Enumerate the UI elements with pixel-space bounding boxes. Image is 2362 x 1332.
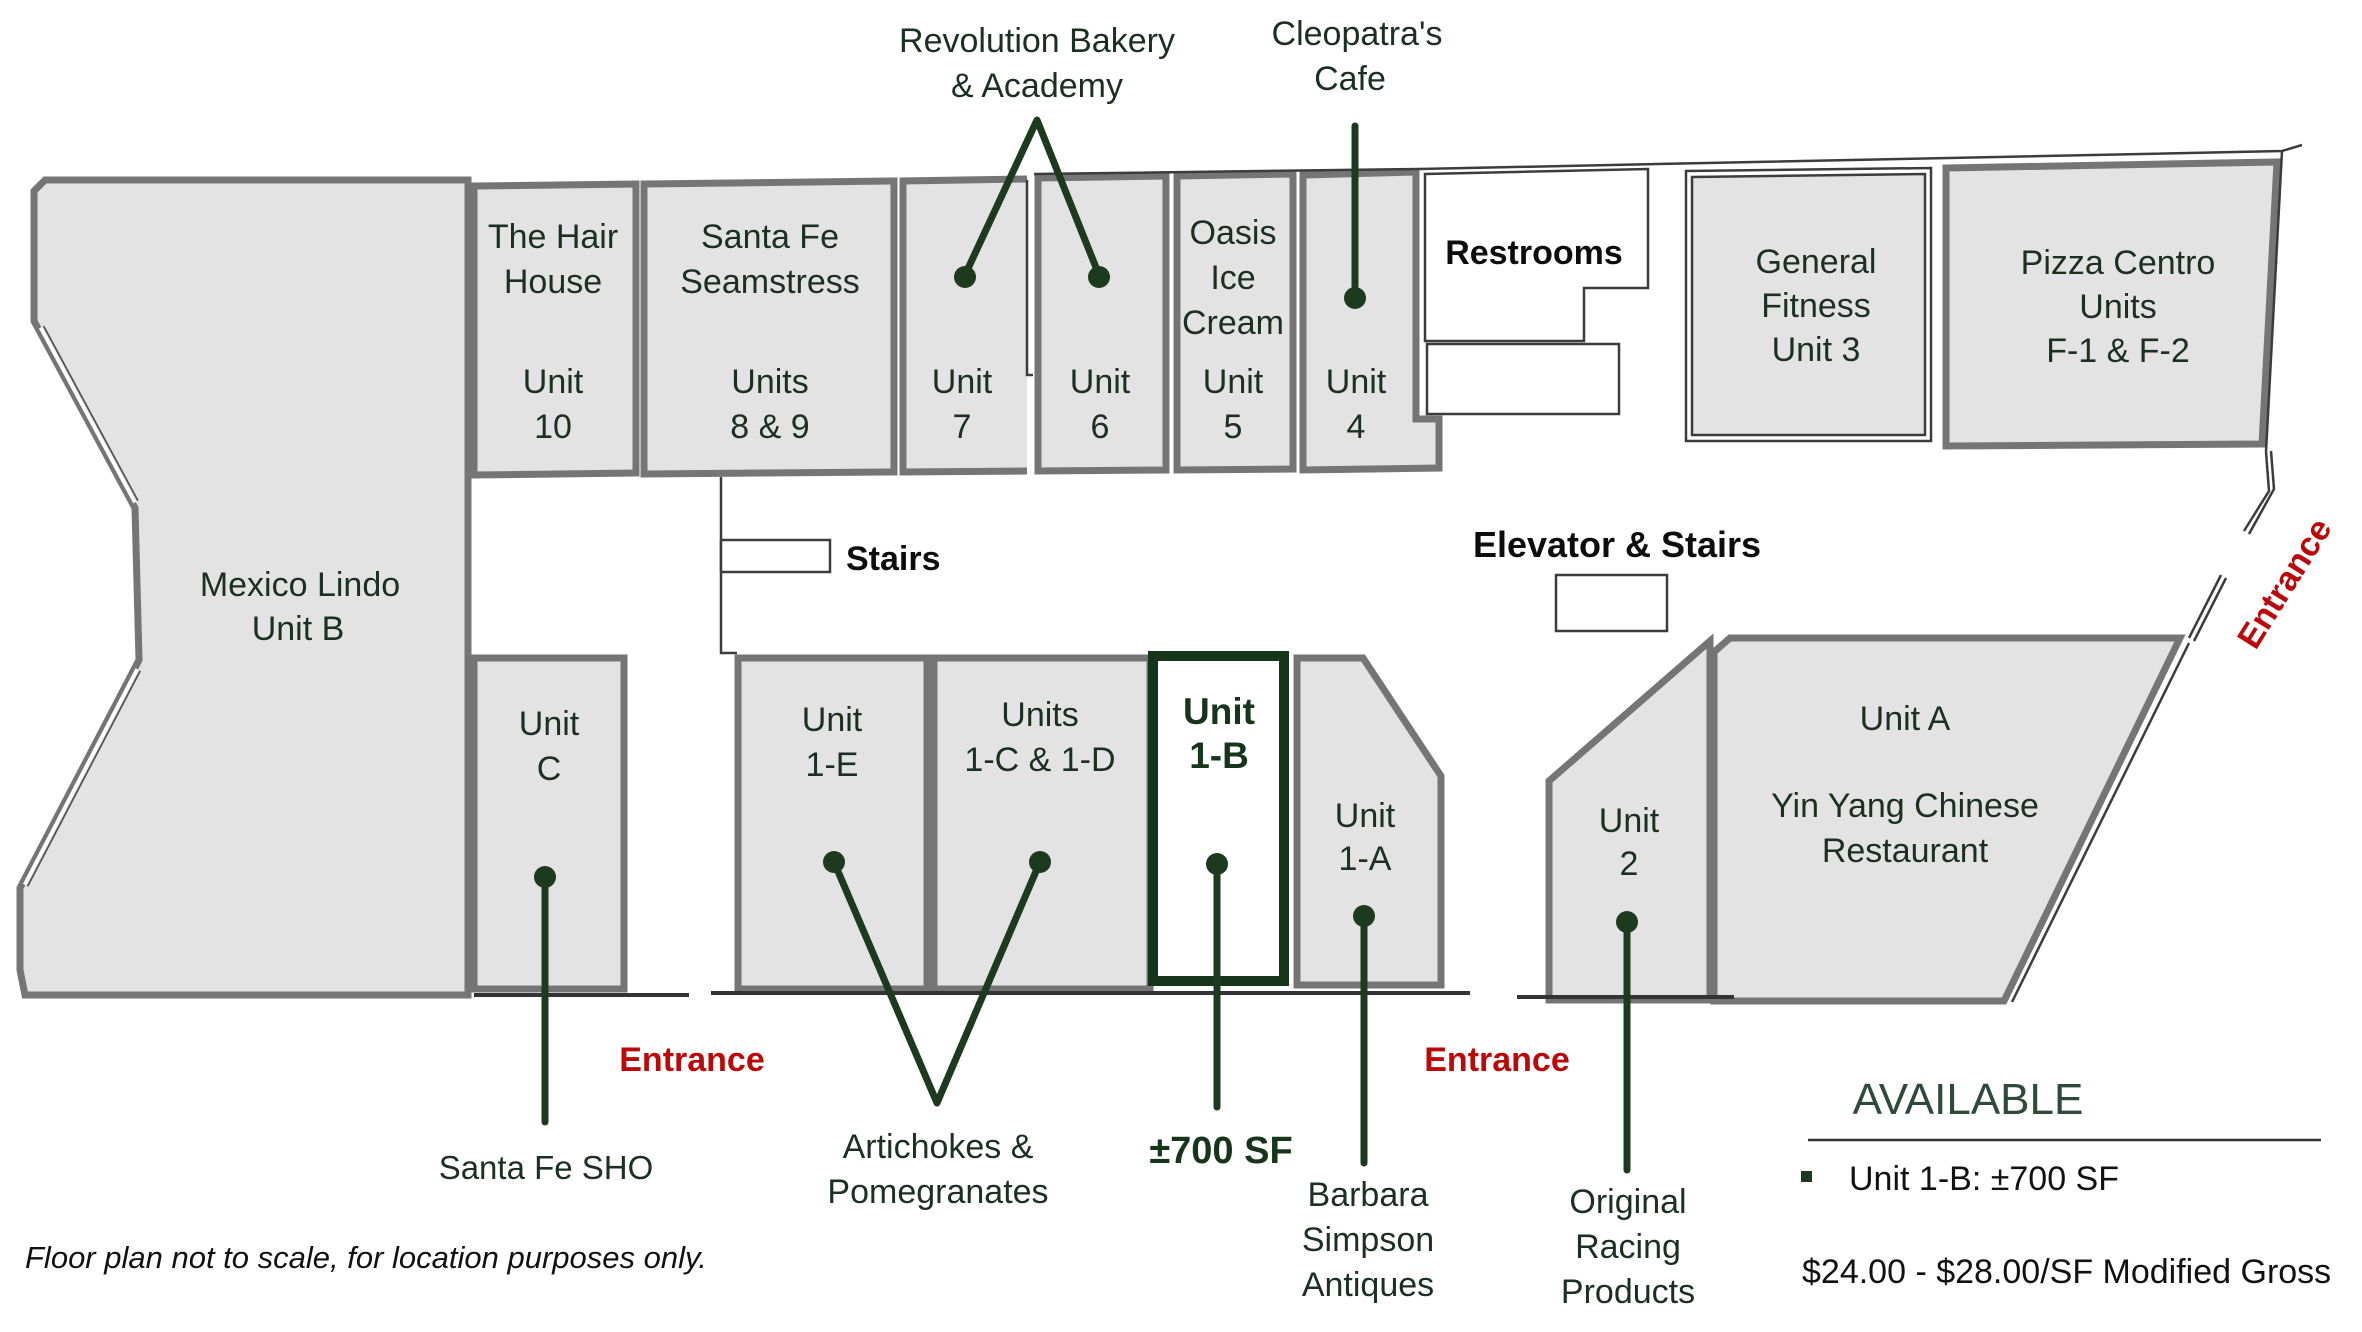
svg-text:Unit 3: Unit 3 [1772, 331, 1861, 369]
svg-text:The Hair: The Hair [488, 218, 618, 256]
svg-text:Antiques: Antiques [1302, 1266, 1434, 1304]
svg-text:C: C [537, 750, 562, 788]
svg-text:Original: Original [1569, 1183, 1686, 1221]
svg-text:Stairs: Stairs [846, 540, 941, 578]
svg-text:Unit: Unit [523, 363, 584, 401]
svg-text:Unit: Unit [1335, 797, 1396, 835]
svg-text:Pomegranates: Pomegranates [827, 1173, 1048, 1211]
svg-text:House: House [504, 263, 602, 301]
svg-text:Cleopatra's: Cleopatra's [1272, 15, 1443, 53]
svg-text:Unit: Unit [1203, 363, 1264, 401]
svg-text:General: General [1756, 243, 1877, 281]
svg-text:$24.00 - $28.00/SF Modified Gr: $24.00 - $28.00/SF Modified Gross [1802, 1253, 2331, 1291]
svg-text:Cafe: Cafe [1314, 60, 1386, 98]
svg-text:Units: Units [1001, 696, 1078, 734]
svg-text:Santa Fe: Santa Fe [701, 218, 839, 256]
svg-text:Restaurant: Restaurant [1822, 832, 1989, 870]
svg-text:1-A: 1-A [1339, 840, 1392, 878]
svg-text:F-1 & F-2: F-1 & F-2 [2046, 332, 2190, 370]
svg-text:Units: Units [731, 363, 808, 401]
svg-text:10: 10 [534, 408, 572, 446]
svg-text:2: 2 [1620, 845, 1639, 883]
svg-text:Simpson: Simpson [1302, 1221, 1434, 1259]
svg-text:Unit B: Unit B [252, 610, 345, 648]
svg-text:7: 7 [953, 408, 972, 446]
svg-text:Racing: Racing [1575, 1228, 1681, 1266]
svg-text:1-B: 1-B [1189, 735, 1249, 776]
svg-text:Unit: Unit [1326, 363, 1387, 401]
svg-text:Cream: Cream [1182, 304, 1284, 342]
svg-text:Pizza Centro: Pizza Centro [2021, 244, 2216, 282]
svg-text:±700 SF: ±700 SF [1149, 1130, 1292, 1172]
svg-text:Restrooms: Restrooms [1445, 234, 1623, 272]
svg-text:Unit: Unit [1183, 691, 1255, 732]
svg-text:Unit: Unit [1070, 363, 1131, 401]
svg-text:Unit 1-B: ±700 SF: Unit 1-B: ±700 SF [1849, 1160, 2119, 1198]
svg-text:Oasis: Oasis [1190, 214, 1277, 252]
svg-text:Elevator & Stairs: Elevator & Stairs [1473, 524, 1761, 565]
svg-text:Barbara: Barbara [1308, 1176, 1429, 1214]
svg-text:Units: Units [2079, 288, 2156, 326]
svg-text:Unit: Unit [802, 701, 863, 739]
svg-text:Unit: Unit [1599, 802, 1660, 840]
svg-text:Floor plan not to scale, for l: Floor plan not to scale, for location pu… [25, 1240, 707, 1275]
svg-text:& Academy: & Academy [951, 67, 1123, 105]
svg-text:Artichokes &: Artichokes & [843, 1128, 1034, 1166]
svg-text:Seamstress: Seamstress [680, 263, 860, 301]
svg-text:4: 4 [1347, 408, 1366, 446]
svg-text:Entrance: Entrance [2230, 512, 2339, 656]
svg-text:Santa Fe SHO: Santa Fe SHO [439, 1149, 654, 1186]
svg-text:Ice: Ice [1210, 259, 1255, 297]
svg-text:5: 5 [1224, 408, 1243, 446]
svg-text:1-C & 1-D: 1-C & 1-D [964, 741, 1115, 779]
svg-text:Products: Products [1561, 1273, 1695, 1311]
svg-text:Mexico Lindo: Mexico Lindo [200, 566, 400, 604]
svg-text:8 & 9: 8 & 9 [730, 408, 809, 446]
svg-text:Unit A: Unit A [1860, 700, 1951, 738]
svg-text:Entrance: Entrance [619, 1041, 765, 1079]
svg-text:6: 6 [1091, 408, 1110, 446]
svg-text:Unit: Unit [519, 705, 580, 743]
svg-text:1-E: 1-E [806, 746, 859, 784]
svg-text:AVAILABLE: AVAILABLE [1853, 1075, 2084, 1124]
svg-text:Fitness: Fitness [1761, 287, 1871, 325]
svg-text:Revolution Bakery: Revolution Bakery [899, 22, 1175, 60]
svg-text:Unit: Unit [932, 363, 993, 401]
svg-text:Yin Yang Chinese: Yin Yang Chinese [1771, 787, 2039, 825]
svg-text:Entrance: Entrance [1424, 1041, 1570, 1079]
